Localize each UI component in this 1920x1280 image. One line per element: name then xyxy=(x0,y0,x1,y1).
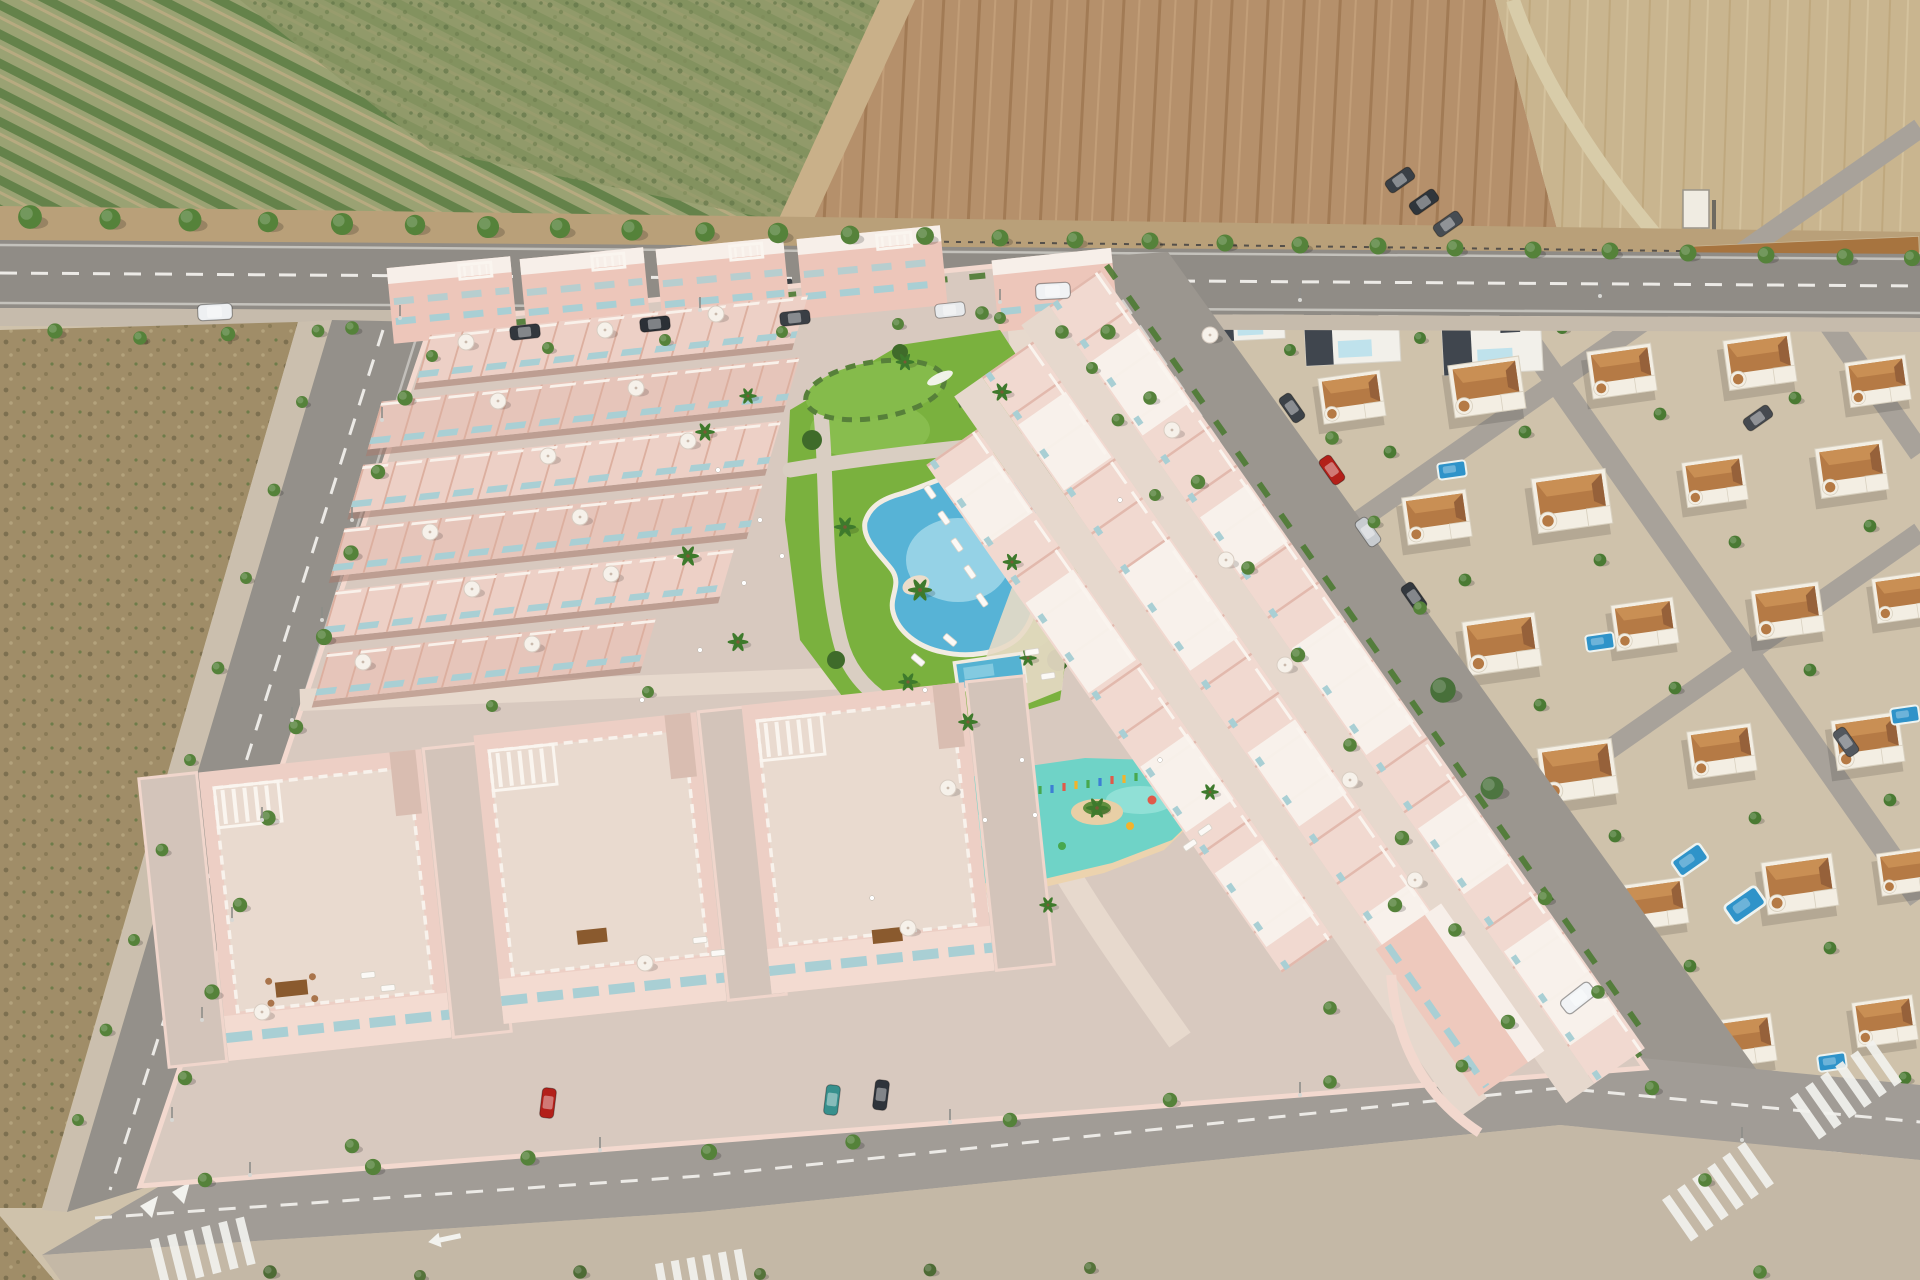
aerial-render-residential-complex xyxy=(0,0,1920,1280)
villa xyxy=(741,676,1054,994)
stamped-item xyxy=(1890,705,1920,725)
stamped-item xyxy=(758,518,763,523)
stamped-item xyxy=(1716,332,1799,402)
stamped-item xyxy=(1904,250,1920,266)
stamped-item xyxy=(1808,440,1891,510)
stamped-item xyxy=(1838,355,1912,418)
stamped-item xyxy=(1675,455,1749,518)
stamped-item xyxy=(1311,370,1387,434)
stamped-item xyxy=(1134,773,1137,781)
stamped-item xyxy=(1098,778,1101,786)
hedge xyxy=(802,430,822,450)
utility-pole xyxy=(1712,200,1716,230)
stamped-item xyxy=(870,896,875,901)
stamped-item xyxy=(711,949,726,956)
stamped-item xyxy=(361,971,376,978)
stamped-item xyxy=(698,648,703,653)
stamped-item xyxy=(1086,780,1089,788)
stamped-item xyxy=(639,315,670,332)
stamped-item xyxy=(1158,758,1163,763)
stamped-item xyxy=(716,468,721,473)
scene-canvas xyxy=(0,0,1920,1280)
stamped-item xyxy=(983,818,988,823)
stamped-item xyxy=(1020,758,1025,763)
farmland xyxy=(0,0,1920,254)
stamped-item xyxy=(1122,775,1125,783)
stamped-item xyxy=(1845,995,1919,1058)
field-shed xyxy=(1683,190,1709,228)
stamped-item xyxy=(923,688,928,693)
stamped-item xyxy=(1870,846,1920,905)
stamped-item xyxy=(1441,356,1528,429)
stamped-item xyxy=(823,1084,841,1115)
stamped-item xyxy=(742,581,747,586)
stamped-item xyxy=(1062,783,1065,791)
stamped-item xyxy=(1754,853,1841,926)
stamped-item xyxy=(1523,468,1614,545)
stamped-item xyxy=(509,323,540,340)
plowed-field xyxy=(795,0,1560,240)
stamped-item xyxy=(1035,282,1070,300)
stamped-item xyxy=(1395,489,1473,555)
villa xyxy=(139,743,511,1067)
stamped-item xyxy=(779,309,810,326)
stamped-item xyxy=(1604,597,1680,661)
villa xyxy=(473,706,786,1024)
stamped-item xyxy=(1050,785,1053,793)
stamped-item xyxy=(197,303,232,321)
stamped-item xyxy=(780,554,785,559)
stamped-item xyxy=(1744,582,1827,652)
stamped-item xyxy=(381,984,396,991)
stamped-item xyxy=(1110,776,1113,784)
stamped-item xyxy=(1074,781,1077,789)
stamped-item xyxy=(1585,632,1615,652)
playground-item xyxy=(1148,796,1157,805)
playground-item xyxy=(1058,842,1066,850)
stamped-item xyxy=(1437,460,1467,480)
playground-item xyxy=(1126,822,1134,830)
stamped-item xyxy=(1033,813,1038,818)
stamped-item xyxy=(1038,786,1041,794)
stamped-item xyxy=(1865,571,1920,634)
stamped-item xyxy=(693,936,708,943)
stamped-item xyxy=(934,301,965,318)
stamped-item xyxy=(1680,723,1758,789)
stamped-item xyxy=(640,698,645,703)
stamped-item xyxy=(872,1079,890,1110)
stamped-item xyxy=(1580,343,1658,409)
stamped-item xyxy=(539,1087,557,1118)
stamped-item xyxy=(1118,498,1123,503)
